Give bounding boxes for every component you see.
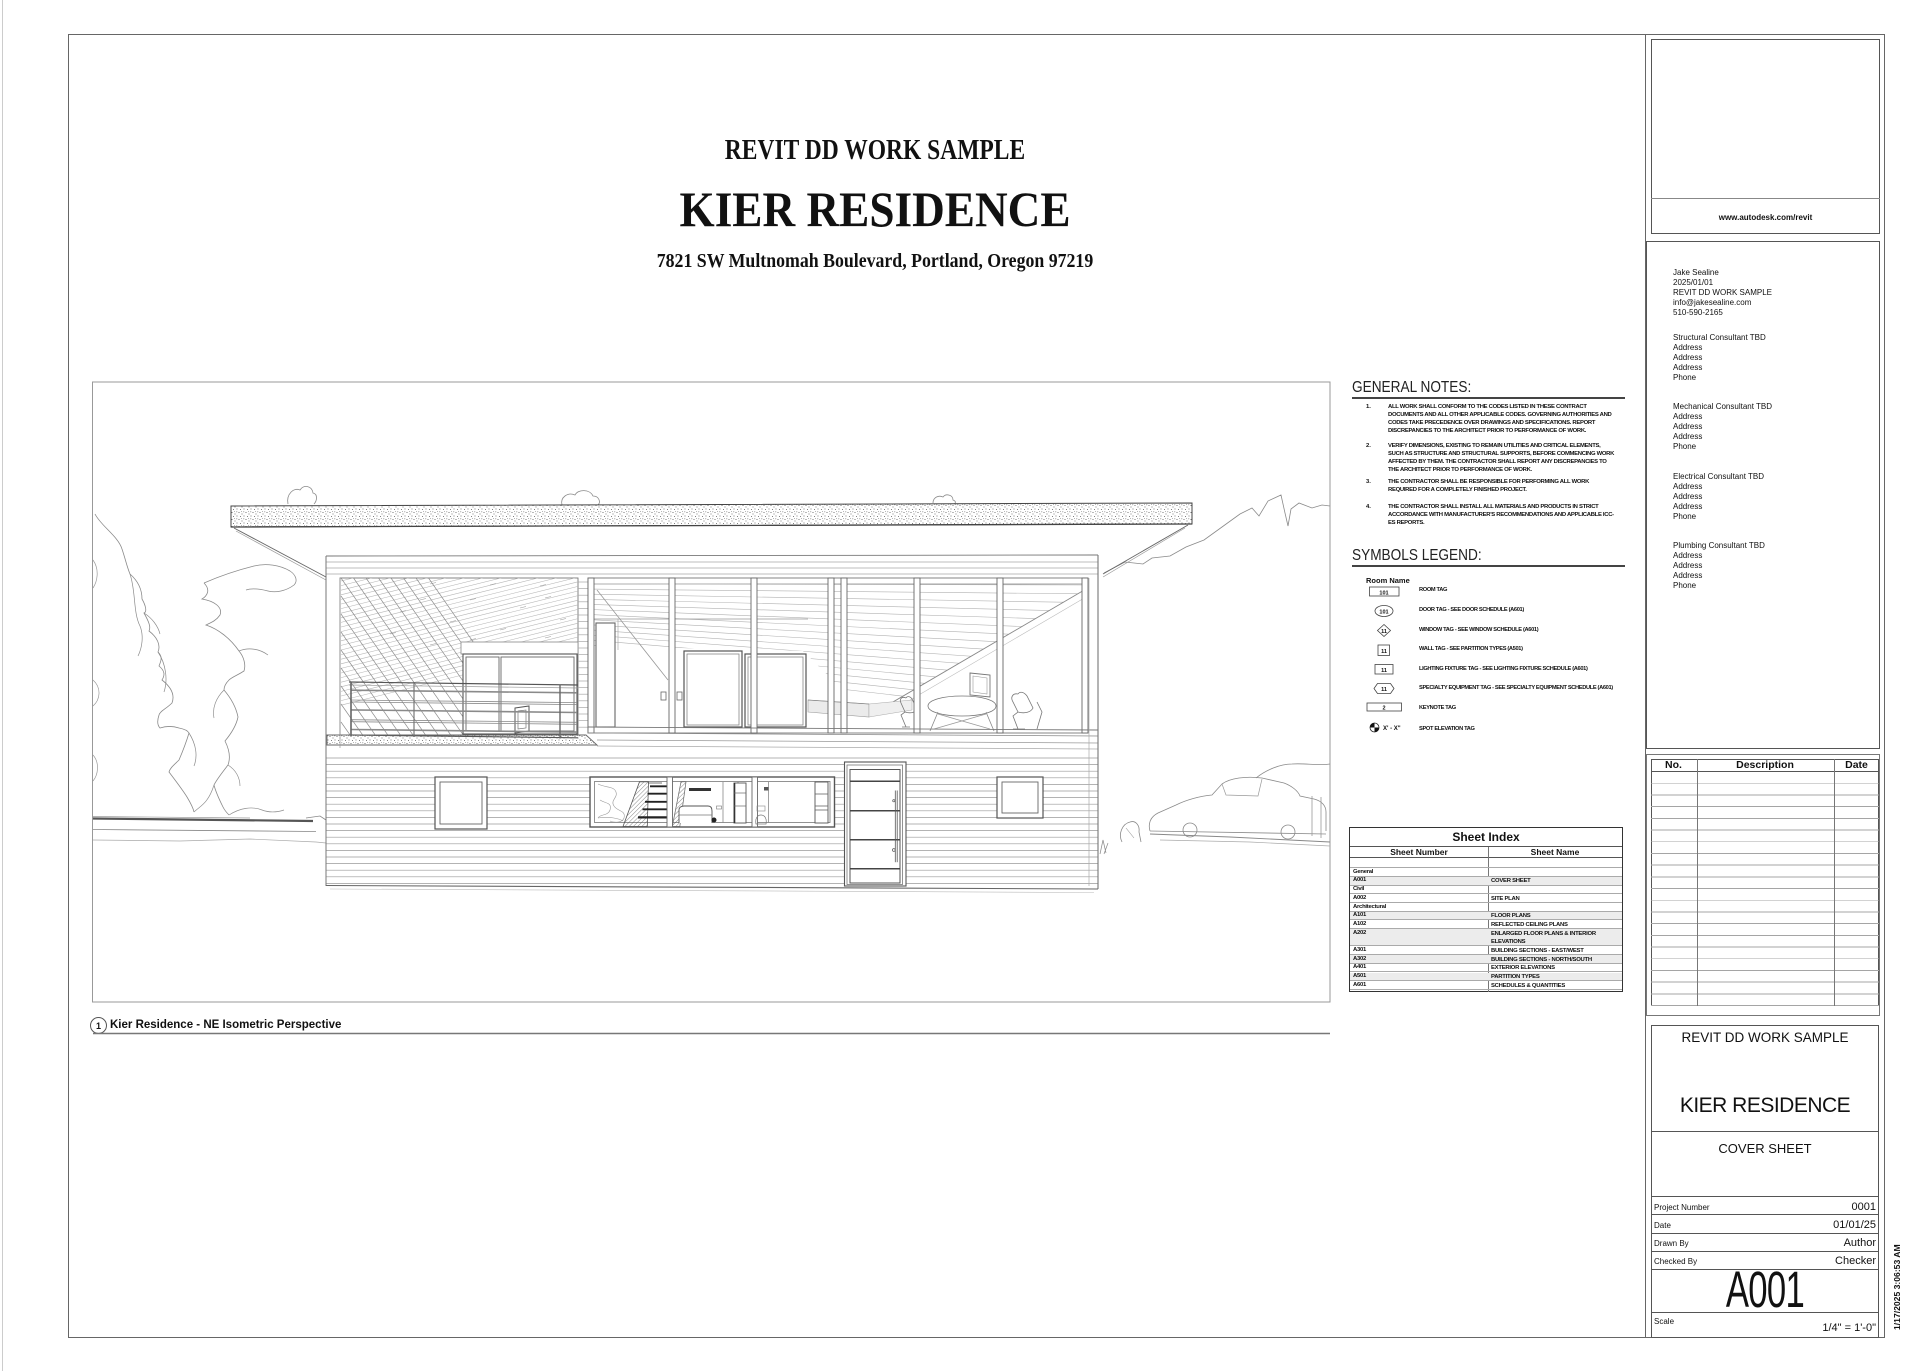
svg-text:11: 11 [1381, 668, 1387, 674]
svg-text:11: 11 [1381, 649, 1387, 655]
svg-text:1/17/2025 3:06:53 AM: 1/17/2025 3:06:53 AM [1892, 1244, 1902, 1330]
svg-text:X' - X": X' - X" [1383, 726, 1401, 732]
svg-text:2: 2 [1382, 706, 1385, 712]
svg-text:11: 11 [1381, 687, 1387, 693]
svg-text:101: 101 [1379, 610, 1388, 616]
svg-text:11: 11 [1381, 629, 1387, 635]
svg-text:Room Name: Room Name [1366, 576, 1410, 585]
svg-text:1: 1 [96, 1021, 101, 1031]
svg-text:101: 101 [1379, 591, 1388, 597]
svg-text:Kier Residence - NE Isometric: Kier Residence - NE Isometric Perspectiv… [110, 1019, 341, 1031]
